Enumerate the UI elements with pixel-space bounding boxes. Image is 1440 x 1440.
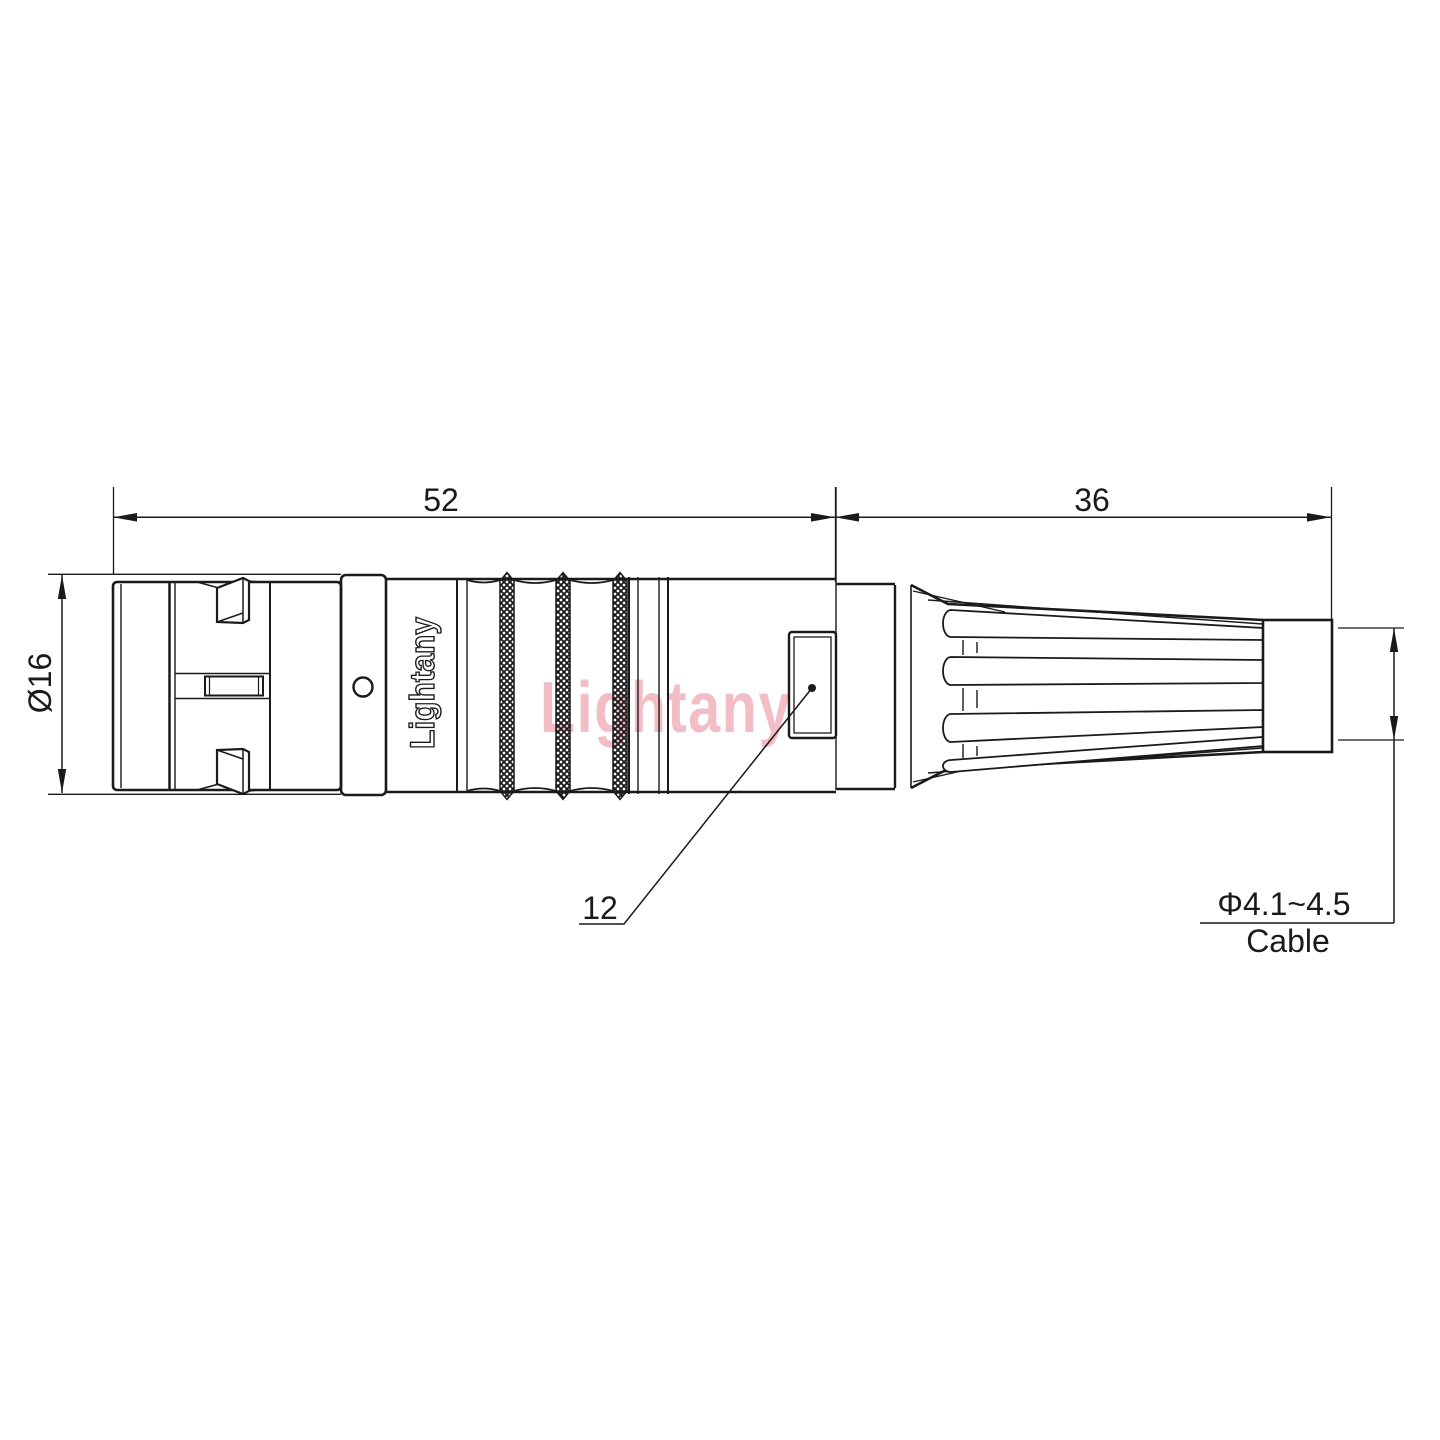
collar-hole bbox=[354, 678, 373, 697]
dim-cable-diameter-label: Φ4.1~4.5 bbox=[1217, 886, 1350, 922]
dim-rear-length-label: 36 bbox=[1074, 482, 1110, 518]
drawing-canvas: Lightany bbox=[0, 0, 1440, 1440]
dim-front-diameter-label: Ø16 bbox=[22, 653, 58, 713]
connector-technical-drawing: Lightany bbox=[0, 0, 1440, 1440]
leader-dot bbox=[808, 684, 816, 692]
dim-cable-caption-label: Cable bbox=[1246, 923, 1330, 959]
body-engraving-text: Lightany bbox=[404, 617, 442, 749]
watermark-text: Lightany bbox=[540, 668, 792, 748]
dim-coupling-feature-label: 12 bbox=[582, 890, 618, 926]
knurled-band bbox=[556, 573, 570, 800]
dim-front-length-label: 52 bbox=[423, 482, 459, 518]
knurled-band bbox=[613, 573, 627, 800]
knurled-band bbox=[500, 573, 514, 800]
